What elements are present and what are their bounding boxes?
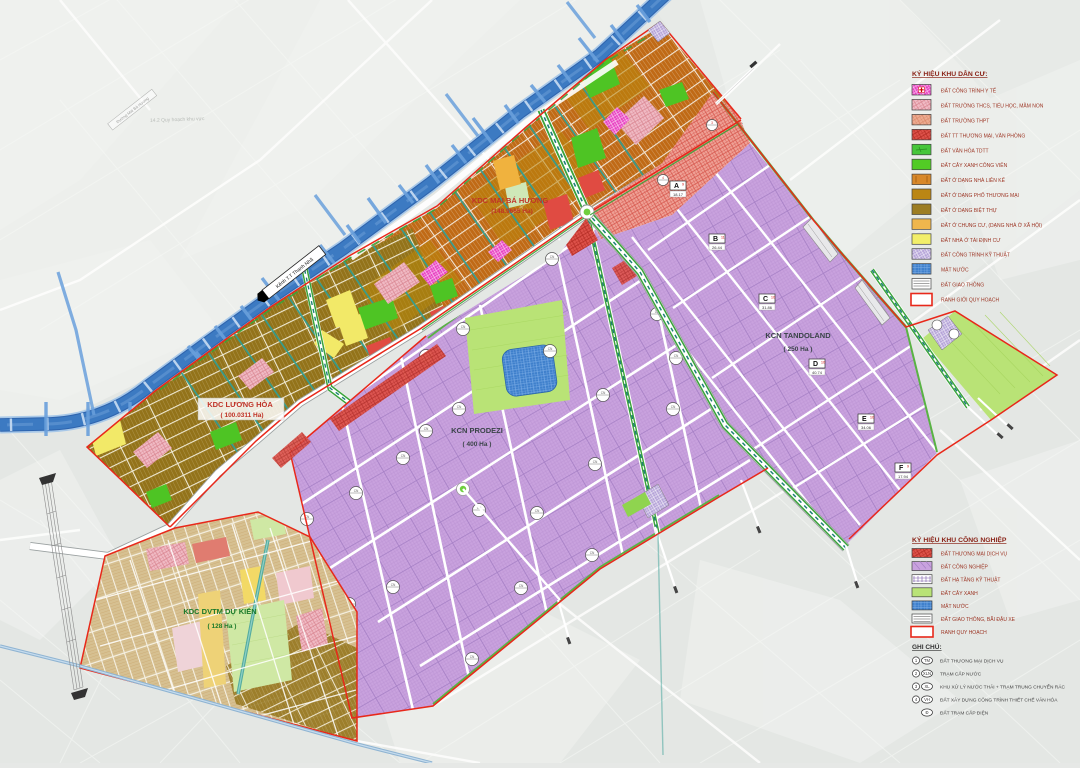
svg-text:XL: XL [924, 684, 930, 689]
svg-text:A: A [674, 183, 679, 190]
svg-text:CN: CN [593, 460, 598, 464]
svg-text:KDC MAI BÁ HƯƠNG: KDC MAI BÁ HƯƠNG [472, 196, 549, 205]
svg-text:E: E [862, 416, 867, 423]
svg-text:CN: CN [391, 583, 396, 587]
svg-text:ĐẤT NHÀ Ở TÁI ĐỊNH CƯ: ĐẤT NHÀ Ở TÁI ĐỊNH CƯ [941, 237, 1001, 244]
svg-text:10: 10 [771, 296, 775, 300]
svg-text:ĐẤT THƯƠNG MẠI DỊCH VỤ: ĐẤT THƯƠNG MẠI DỊCH VỤ [940, 658, 1004, 665]
svg-text:CN: CN [461, 325, 466, 329]
svg-text:KDC DVTM DỰ KIẾN: KDC DVTM DỰ KIẾN [183, 606, 256, 616]
svg-text:ĐẤT CÂY XANH: ĐẤT CÂY XANH [941, 590, 978, 597]
svg-text:ĐẤT XÂY DỰNG CÔNG TRÌNH THIẾT: ĐẤT XÂY DỰNG CÔNG TRÌNH THIẾT CHẾ VĂN HÓ… [940, 697, 1058, 704]
svg-text:RANH GIỚI QUY HOẠCH: RANH GIỚI QUY HOẠCH [941, 297, 999, 304]
svg-text:ĐẤT CÂY XANH CÔNG VIÊN: ĐẤT CÂY XANH CÔNG VIÊN [941, 161, 1008, 169]
svg-text:C: C [763, 296, 768, 303]
svg-text:CN: CN [550, 255, 555, 259]
svg-text:4: 4 [662, 176, 664, 180]
svg-text:CN: CN [548, 347, 553, 351]
svg-text:ĐẤT CÔNG TRÌNH KỸ THUẬT: ĐẤT CÔNG TRÌNH KỸ THUẬT [941, 252, 1010, 259]
svg-text:F: F [899, 465, 904, 472]
svg-text:CN: CN [535, 509, 540, 513]
svg-text:ĐẤT Ở DẠNG PHỐ THƯƠNG MẠI: ĐẤT Ở DẠNG PHỐ THƯƠNG MẠI [941, 192, 1019, 199]
svg-text:CN: CN [590, 551, 595, 555]
svg-text:3: 3 [711, 121, 713, 125]
svg-text:ĐẤT Ở DẠNG NHÀ LIÊN KẾ: ĐẤT Ở DẠNG NHÀ LIÊN KẾ [941, 176, 1006, 184]
svg-text:CN: CN [457, 405, 462, 409]
svg-text:34.06: 34.06 [861, 425, 872, 430]
svg-text:Đ: Đ [925, 710, 928, 715]
svg-text:ĐẤT TRƯỜNG THCS, TIỂU HỌC, MẦM: ĐẤT TRƯỜNG THCS, TIỂU HỌC, MẦM NON [941, 103, 1044, 110]
svg-text:ĐẤT THƯƠNG MẠI DỊCH VỤ: ĐẤT THƯƠNG MẠI DỊCH VỤ [941, 551, 1008, 558]
svg-text:ĐẤT GIAO THÔNG: ĐẤT GIAO THÔNG [941, 282, 984, 289]
svg-text:CN: CN [674, 354, 679, 358]
svg-text:9: 9 [682, 183, 684, 187]
svg-text:ĐẤT GIAO THÔNG, BÃI ĐẬU XE: ĐẤT GIAO THÔNG, BÃI ĐẬU XE [941, 616, 1016, 623]
svg-text:9: 9 [907, 465, 909, 469]
svg-text:ĐẤT HẠ TẦNG KỸ THUẬT: ĐẤT HẠ TẦNG KỸ THUẬT [941, 577, 1000, 584]
svg-text:ĐẤT CÔNG NGHIỆP: ĐẤT CÔNG NGHIỆP [941, 563, 989, 571]
svg-text:(148.9665 Ha): (148.9665 Ha) [491, 208, 533, 215]
svg-text:CN: CN [519, 584, 524, 588]
svg-text:KÝ HIỆU KHU DÂN CƯ:: KÝ HIỆU KHU DÂN CƯ: [912, 69, 988, 78]
svg-text:26.44: 26.44 [712, 245, 723, 250]
svg-text:CN: CN [401, 454, 406, 458]
svg-text:18.17: 18.17 [673, 192, 684, 197]
svg-text:XLN: XLN [923, 671, 931, 676]
svg-text:D: D [813, 361, 818, 368]
svg-text:CN: CN [671, 405, 676, 409]
svg-text:GHI CHÚ:: GHI CHÚ: [912, 642, 942, 651]
svg-text:RANH QUY HOẠCH: RANH QUY HOẠCH [941, 630, 987, 636]
svg-text:VH: VH [924, 697, 930, 702]
svg-text:CN: CN [601, 391, 606, 395]
svg-text:KDC LƯƠNG HÒA: KDC LƯƠNG HÒA [207, 400, 273, 409]
svg-text:MẶT NƯỚC: MẶT NƯỚC [941, 603, 969, 610]
svg-text:TRẠM CẤP NƯỚC: TRẠM CẤP NƯỚC [940, 671, 982, 678]
svg-text:10: 10 [821, 361, 825, 365]
svg-text:KCN PRODEZI: KCN PRODEZI [451, 426, 503, 435]
svg-text:ĐẤT Ở CHUNG CƯ, (DẠNG NHÀ Ở XÃ: ĐẤT Ở CHUNG CƯ, (DẠNG NHÀ Ở XÃ HỘI) [941, 222, 1042, 229]
svg-text:ĐẤT VĂN HÓA TDTT: ĐẤT VĂN HÓA TDTT [941, 147, 989, 154]
svg-text:ĐẤT CÔNG TRÌNH Y TẾ: ĐẤT CÔNG TRÌNH Y TẾ [941, 88, 997, 95]
svg-text:17.94: 17.94 [898, 474, 909, 479]
svg-text:( 100.0311 Ha): ( 100.0311 Ha) [220, 412, 263, 419]
svg-text:KHU XỬ LÝ NƯỚC THẢI + TRẠM TRU: KHU XỬ LÝ NƯỚC THẢI + TRẠM TRUNG CHUYỂN … [940, 684, 1065, 691]
svg-text:CN: CN [354, 489, 359, 493]
svg-text:( 128 Ha ): ( 128 Ha ) [208, 623, 237, 630]
svg-text:40.74: 40.74 [812, 370, 823, 375]
svg-text:31.86: 31.86 [762, 305, 773, 310]
svg-text:ĐẤT TT THƯƠNG MẠI, VĂN PHÒNG: ĐẤT TT THƯƠNG MẠI, VĂN PHÒNG [941, 132, 1025, 139]
svg-text:ĐẤT Ở DẠNG BIỆT THỰ: ĐẤT Ở DẠNG BIỆT THỰ [941, 206, 998, 214]
svg-text:B: B [713, 236, 718, 243]
svg-text:KÝ HIỆU KHU CÔNG NGHIỆP: KÝ HIỆU KHU CÔNG NGHIỆP [912, 535, 1007, 544]
svg-text:11: 11 [721, 236, 725, 240]
svg-text:KCN TANDOLAND: KCN TANDOLAND [765, 331, 831, 340]
svg-text:MẶT NƯỚC: MẶT NƯỚC [941, 267, 969, 274]
svg-text:( 250 Ha ): ( 250 Ha ) [784, 346, 813, 353]
svg-text:TM: TM [924, 658, 931, 663]
svg-text:ĐẤT TRƯỜNG THPT: ĐẤT TRƯỜNG THPT [941, 117, 989, 124]
svg-text:CN: CN [470, 655, 475, 659]
svg-text:10: 10 [870, 416, 874, 420]
svg-text:CN: CN [424, 427, 429, 431]
svg-text:( 400 Ha ): ( 400 Ha ) [463, 441, 492, 448]
